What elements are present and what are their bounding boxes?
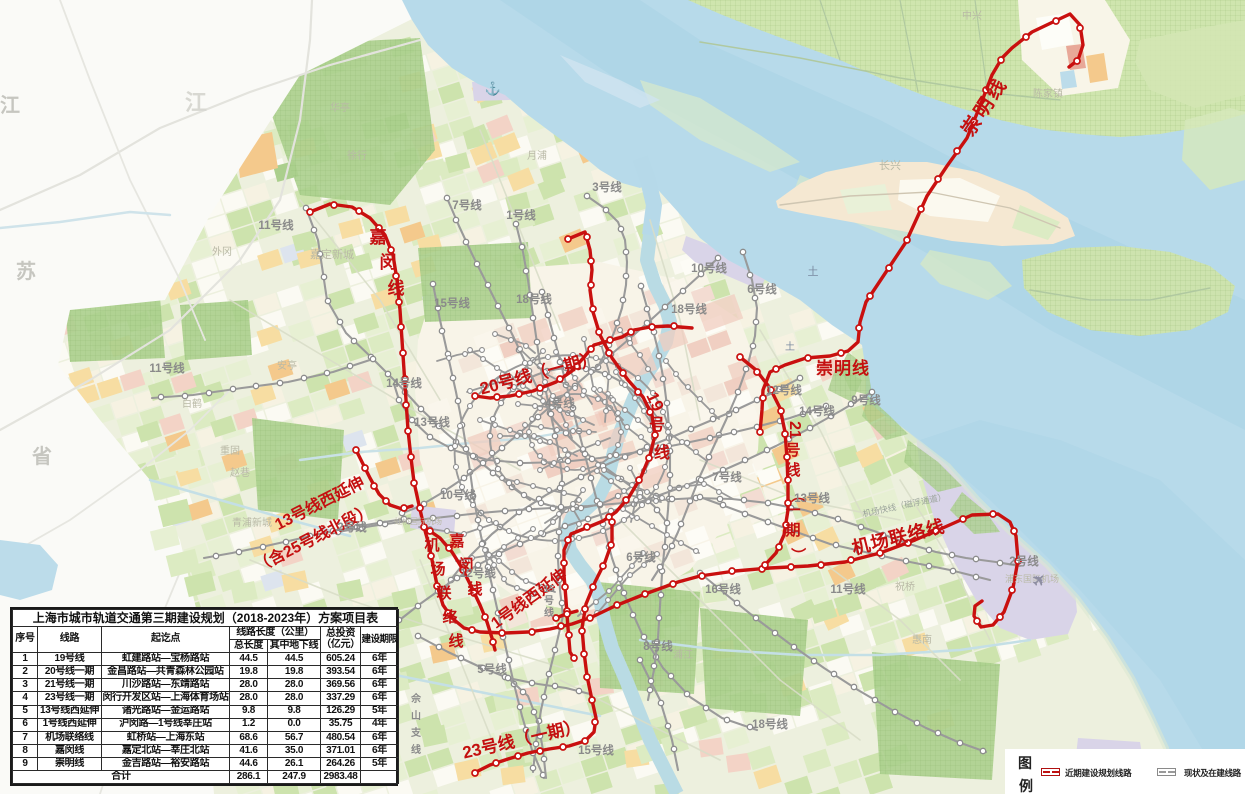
- svg-text:线: 线: [411, 743, 421, 756]
- svg-text:11号线: 11号线: [830, 582, 866, 596]
- svg-text:2号线: 2号线: [337, 520, 367, 534]
- svg-text:线: 线: [448, 632, 463, 650]
- svg-text:1号线: 1号线: [506, 208, 536, 222]
- svg-text:⚓: ⚓: [485, 81, 501, 96]
- svg-text:徐行: 徐行: [347, 149, 367, 162]
- svg-text:省: 省: [31, 445, 52, 468]
- svg-text:14号线: 14号线: [386, 376, 422, 390]
- svg-text:赵巷: 赵巷: [230, 466, 250, 479]
- svg-text:4号线: 4号线: [545, 396, 575, 410]
- svg-text:18号线: 18号线: [671, 302, 707, 316]
- svg-text:13号线: 13号线: [794, 491, 830, 505]
- svg-text:场: 场: [430, 561, 445, 578]
- svg-text:线: 线: [785, 461, 800, 479]
- svg-text:8号线: 8号线: [643, 639, 673, 653]
- svg-text:崇明线: 崇明线: [816, 358, 870, 378]
- svg-text:安亭: 安亭: [277, 359, 297, 372]
- svg-text:线: 线: [654, 443, 670, 462]
- svg-text:9号线: 9号线: [851, 393, 881, 407]
- svg-text:13号线: 13号线: [414, 415, 450, 429]
- svg-text:土: 土: [785, 340, 795, 353]
- svg-text:嘉定新城: 嘉定新城: [310, 247, 354, 261]
- svg-text:嘉: 嘉: [369, 227, 387, 247]
- svg-text:10号线: 10号线: [440, 488, 476, 502]
- svg-text:华亭: 华亭: [330, 101, 350, 114]
- svg-text:号: 号: [649, 416, 665, 434]
- svg-text:陈家镇: 陈家镇: [1033, 87, 1063, 100]
- svg-text:号: 号: [544, 595, 554, 607]
- svg-text:12号线: 12号线: [766, 383, 802, 397]
- svg-text:机: 机: [424, 536, 439, 554]
- svg-text:11号线: 11号线: [149, 361, 185, 375]
- svg-text:线: 线: [388, 278, 405, 298]
- svg-text:18号线: 18号线: [752, 717, 788, 731]
- svg-text:月浦: 月浦: [527, 149, 547, 162]
- svg-text:15号线: 15号线: [578, 743, 614, 757]
- svg-text:络: 络: [442, 608, 457, 626]
- svg-text:外冈: 外冈: [212, 246, 232, 258]
- svg-text:线: 线: [467, 580, 482, 598]
- svg-text:18号线: 18号线: [516, 292, 552, 306]
- svg-text:21: 21: [786, 421, 803, 439]
- svg-text:青浦新城: 青浦新城: [232, 516, 272, 529]
- svg-text:重固: 重固: [220, 444, 240, 457]
- svg-text:11号线: 11号线: [258, 218, 294, 232]
- svg-text:山: 山: [411, 709, 421, 722]
- svg-text:线: 线: [544, 606, 554, 619]
- svg-text:号: 号: [785, 442, 800, 459]
- svg-text:白鹤: 白鹤: [182, 397, 202, 410]
- svg-text:浦江: 浦江: [673, 648, 693, 661]
- svg-text:7号线: 7号线: [712, 470, 742, 484]
- svg-text:3号线: 3号线: [592, 180, 622, 194]
- svg-text:祝桥: 祝桥: [895, 580, 915, 593]
- svg-text:江: 江: [185, 90, 207, 115]
- svg-text:7号线: 7号线: [452, 198, 482, 212]
- svg-text:15: 15: [543, 584, 555, 595]
- svg-text:5号线: 5号线: [477, 662, 507, 676]
- svg-text:苏: 苏: [16, 260, 36, 283]
- svg-text:虹桥国际机场: 虹桥国际机场: [394, 516, 442, 526]
- svg-text:联: 联: [436, 585, 452, 602]
- svg-text:10号线: 10号线: [691, 261, 727, 275]
- svg-text:2号线: 2号线: [1009, 554, 1039, 568]
- svg-text:中兴: 中兴: [962, 9, 982, 22]
- svg-text:期: 期: [785, 521, 800, 539]
- svg-text:15号线: 15号线: [434, 296, 470, 310]
- svg-text:14号线: 14号线: [799, 404, 835, 418]
- svg-text:土: 土: [808, 265, 819, 278]
- svg-text:惠南: 惠南: [912, 633, 932, 646]
- svg-text:嘉: 嘉: [448, 532, 464, 550]
- svg-text:16号线: 16号线: [705, 582, 741, 596]
- svg-text:闵: 闵: [380, 252, 397, 272]
- svg-text:）: ）: [789, 547, 807, 562]
- svg-text:支: 支: [410, 726, 422, 739]
- svg-text:佘: 佘: [410, 692, 422, 705]
- svg-text:长兴: 长兴: [879, 159, 901, 172]
- svg-text:12号线: 12号线: [460, 566, 496, 580]
- svg-text:江: 江: [0, 94, 20, 117]
- svg-text:6号线: 6号线: [747, 282, 777, 296]
- svg-text:6号线: 6号线: [626, 550, 656, 564]
